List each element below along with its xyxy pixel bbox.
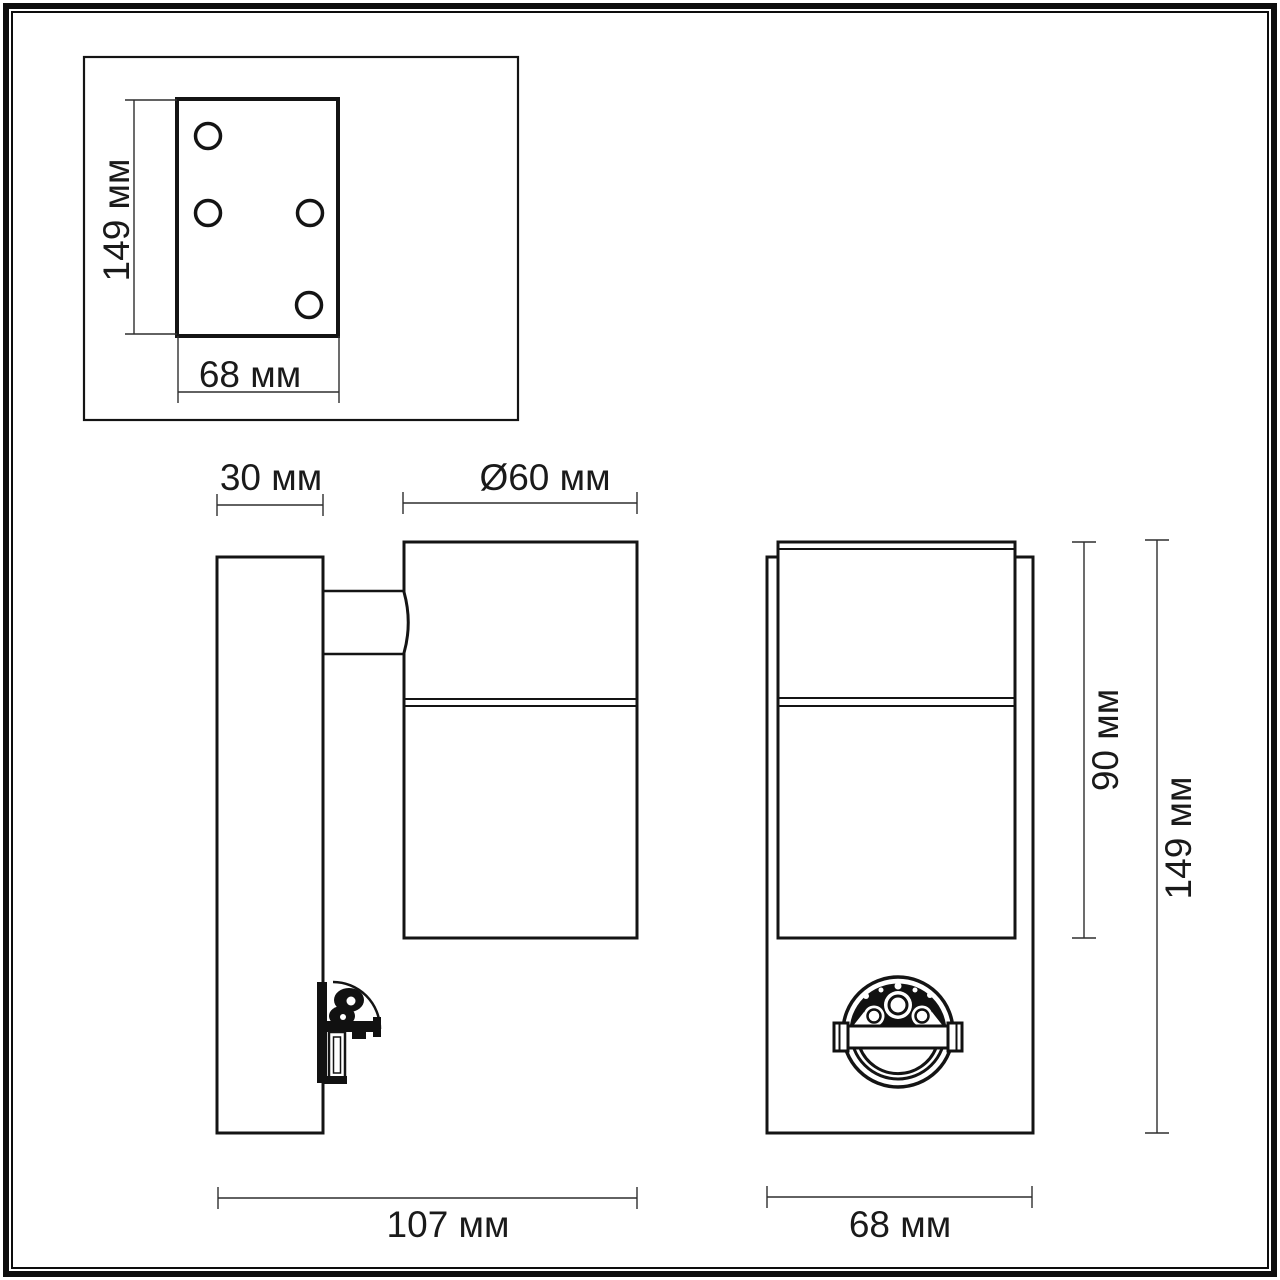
side-view bbox=[217, 542, 637, 1133]
dimension-wall-plate-depth: 30 мм bbox=[217, 457, 323, 516]
total-height-label: 149 мм bbox=[1158, 777, 1199, 900]
wall-plate-side bbox=[217, 557, 323, 1133]
lamp-body-side bbox=[404, 542, 637, 938]
total-depth-label: 107 мм bbox=[387, 1204, 510, 1245]
dimension-plate-height: 149 мм bbox=[96, 100, 177, 334]
body-diameter-label: Ø60 мм bbox=[479, 457, 610, 498]
dimension-total-depth: 107 мм bbox=[218, 1187, 637, 1245]
technical-drawing-canvas: 149 мм 68 мм bbox=[0, 0, 1280, 1280]
lamp-dimension-drawing: 149 мм 68 мм bbox=[0, 0, 1280, 1280]
screw-hole bbox=[298, 201, 323, 226]
dimension-body-height: 90 мм bbox=[1072, 542, 1126, 938]
motion-sensor-side bbox=[317, 982, 381, 1084]
mounting-plate-view: 149 мм 68 мм bbox=[84, 57, 518, 420]
wall-plate-depth-label: 30 мм bbox=[220, 457, 322, 498]
front-view bbox=[767, 542, 1033, 1133]
plate-width-label: 68 мм bbox=[199, 354, 301, 395]
body-height-label: 90 мм bbox=[1085, 689, 1126, 791]
lamp-body-front bbox=[778, 542, 1015, 938]
screw-hole bbox=[196, 124, 221, 149]
plate-height-label: 149 мм bbox=[96, 159, 137, 282]
front-width-label: 68 мм bbox=[849, 1204, 951, 1245]
dimension-body-diameter: Ø60 мм bbox=[403, 457, 637, 514]
screw-hole bbox=[196, 201, 221, 226]
screw-hole bbox=[297, 293, 322, 318]
dimension-plate-width: 68 мм bbox=[178, 336, 339, 403]
dimension-total-height: 149 мм bbox=[1145, 540, 1199, 1133]
dimension-front-width: 68 мм bbox=[767, 1186, 1032, 1245]
